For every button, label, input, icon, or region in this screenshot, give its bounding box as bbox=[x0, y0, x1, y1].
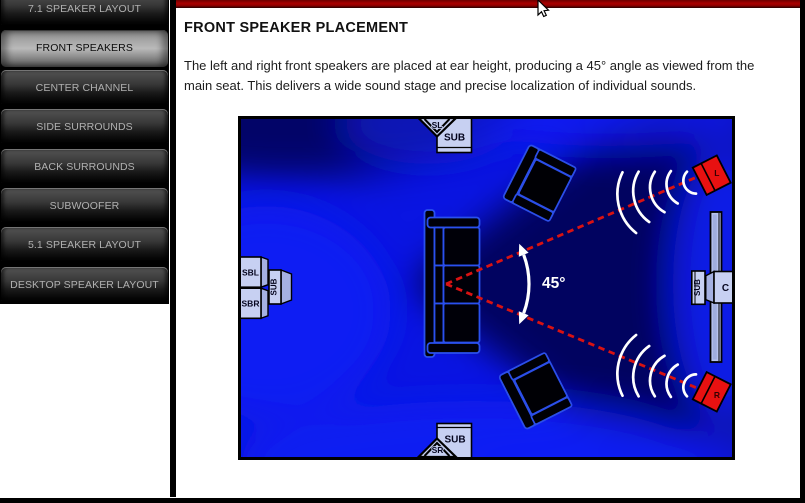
svg-text:SUB: SUB bbox=[693, 279, 702, 296]
svg-text:SBL: SBL bbox=[242, 268, 259, 278]
svg-text:SBR: SBR bbox=[242, 299, 260, 309]
svg-text:L: L bbox=[714, 168, 719, 178]
svg-text:SL: SL bbox=[432, 120, 443, 130]
svg-text:C: C bbox=[722, 283, 729, 294]
svg-text:SUB: SUB bbox=[444, 133, 465, 144]
svg-text:45°: 45° bbox=[542, 275, 565, 292]
svg-text:SR: SR bbox=[432, 445, 444, 455]
svg-text:R: R bbox=[714, 390, 720, 400]
svg-text:SUB: SUB bbox=[270, 278, 279, 295]
svg-text:SUB: SUB bbox=[444, 435, 465, 446]
